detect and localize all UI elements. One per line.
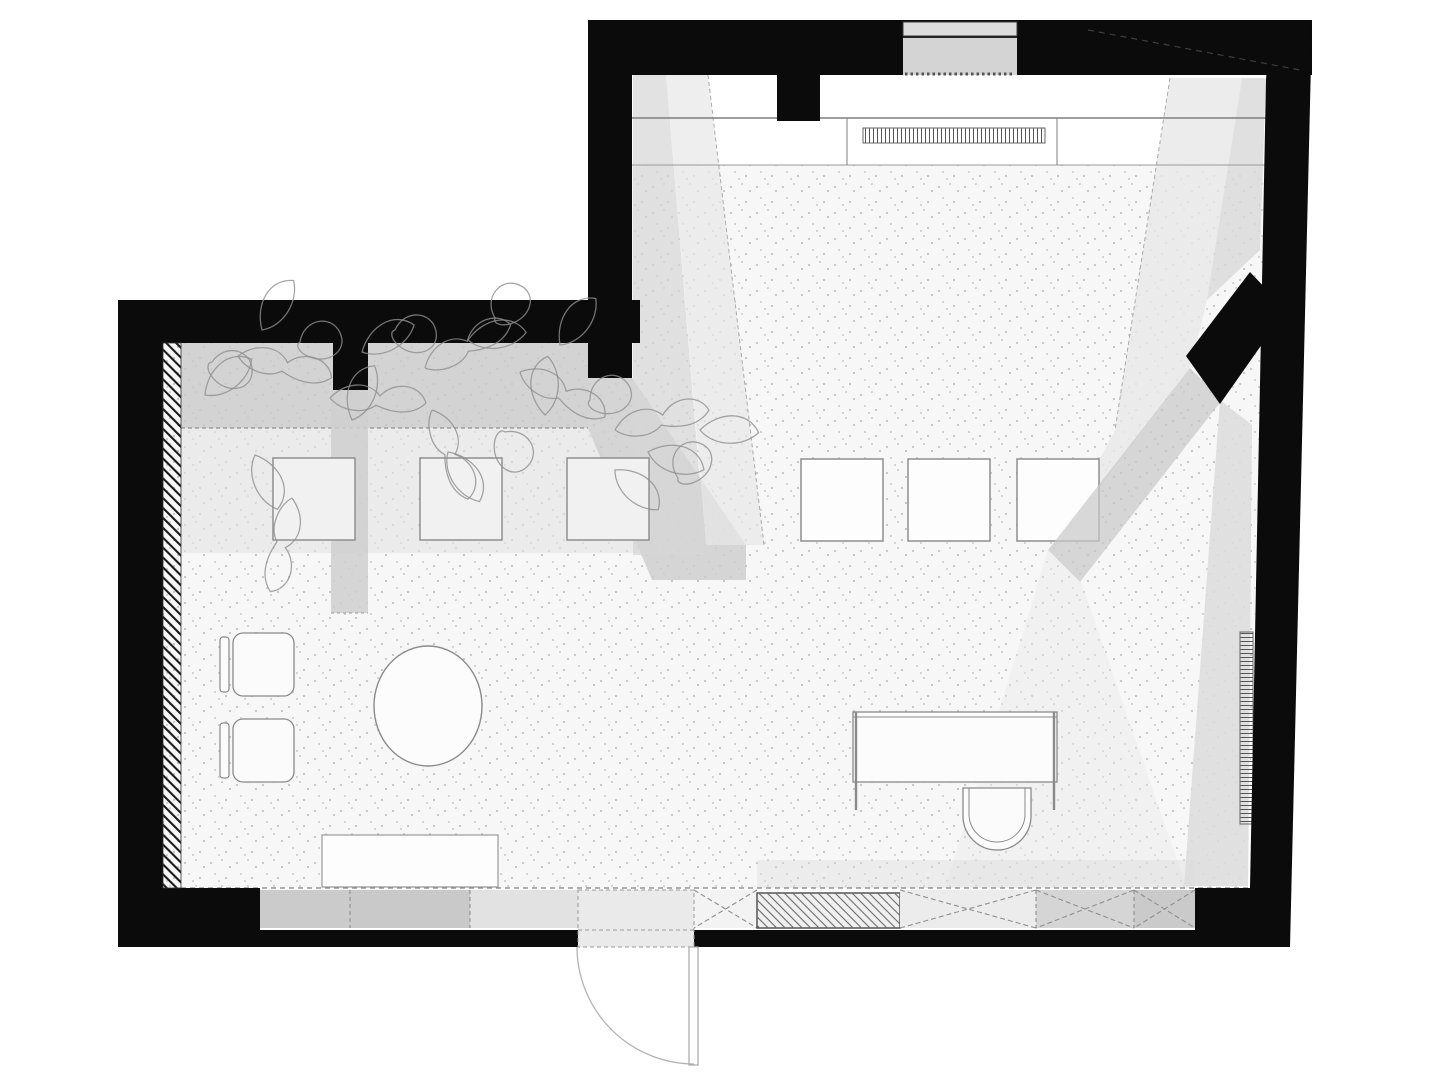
entry-opening-inner xyxy=(903,37,1017,75)
door-swing-arc xyxy=(577,947,694,1064)
armchair-2-back xyxy=(220,723,229,778)
radiator-right xyxy=(1240,632,1253,824)
radiator-top xyxy=(863,128,1045,143)
wall-bottom-east xyxy=(694,930,1195,947)
entry-opening-outer xyxy=(903,22,1017,36)
desk-top xyxy=(853,712,1057,782)
table-left-3 xyxy=(567,458,649,540)
wall-top-pier xyxy=(777,75,820,121)
floor-plan-drawing xyxy=(0,0,1440,1080)
table-left-1 xyxy=(273,458,355,540)
armchair-2-seat xyxy=(233,719,294,782)
table-right-1 xyxy=(801,459,883,541)
table-left-2 xyxy=(420,458,502,540)
shadow-bottom-strip xyxy=(757,860,1195,888)
sill-segment-1 xyxy=(260,890,350,928)
armchair-1-back xyxy=(220,637,229,692)
wall-bottom-west xyxy=(260,930,578,947)
desk-chair-outer xyxy=(963,788,1031,850)
plan-root xyxy=(118,20,1312,1065)
sill-segment-3 xyxy=(470,890,578,928)
wall-finish-hatch xyxy=(163,343,181,888)
floor-plan-page xyxy=(0,0,1440,1080)
masonry-infill-hatch xyxy=(757,893,900,928)
door-opening xyxy=(578,890,694,947)
bench xyxy=(322,835,498,887)
door-leaf xyxy=(689,947,698,1065)
armchair-1-seat xyxy=(233,633,294,696)
table-right-2 xyxy=(908,459,990,541)
sill-segment-2 xyxy=(350,890,470,928)
wall-bottom-left-corner xyxy=(118,888,260,947)
wall-left xyxy=(118,300,163,947)
round-table xyxy=(374,646,482,766)
